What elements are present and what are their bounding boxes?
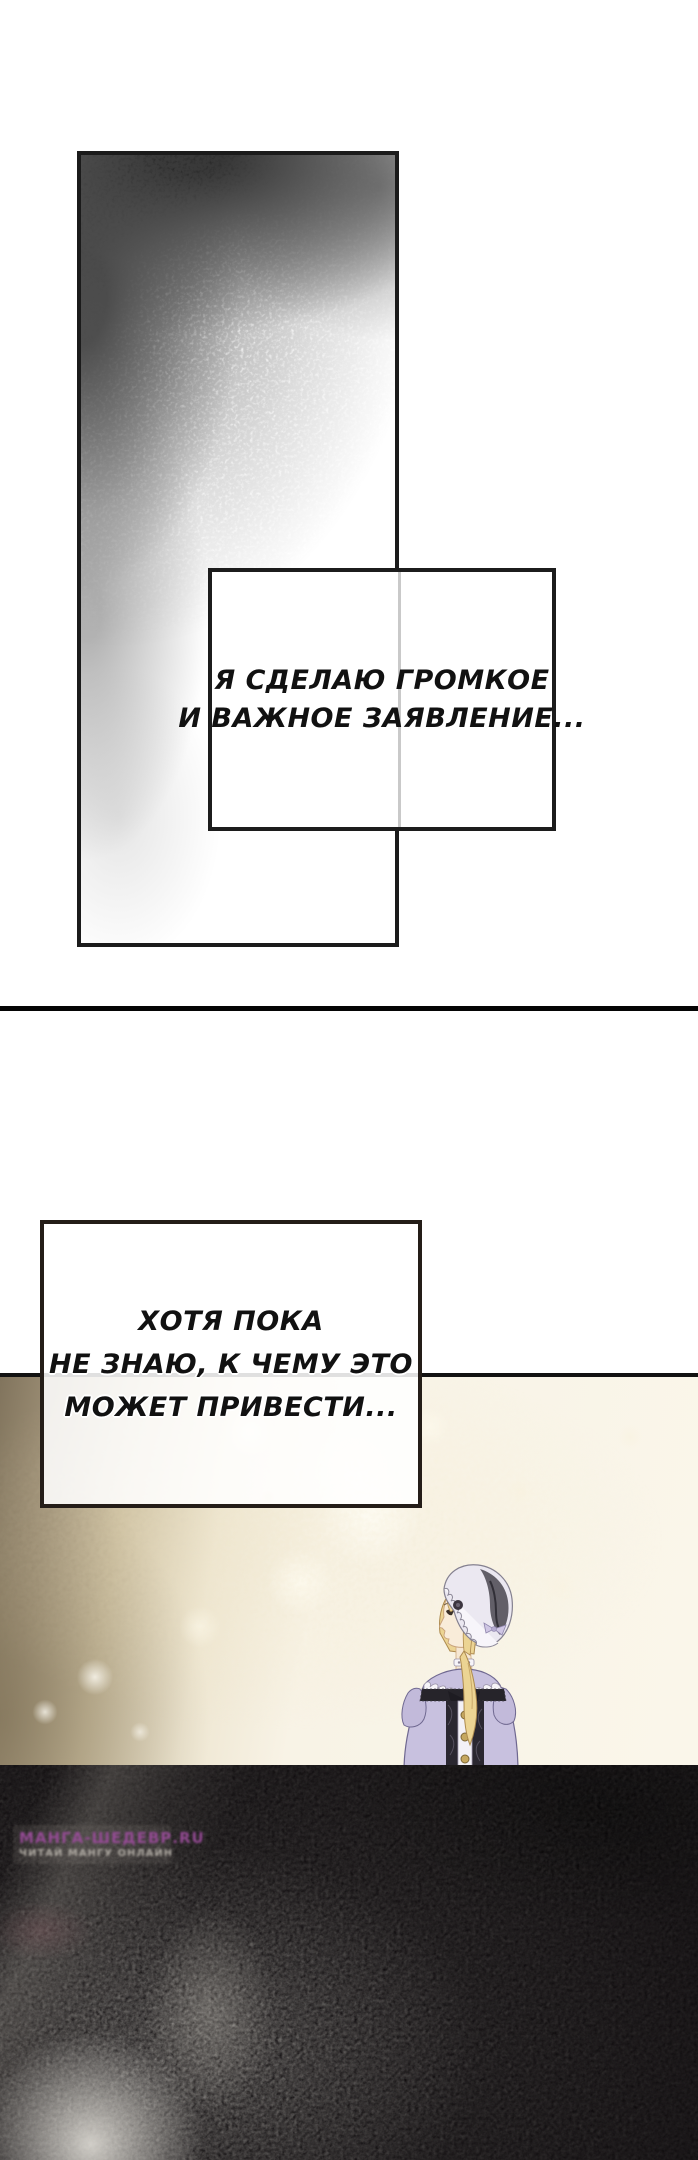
panel-dark: МАНГА-ШЕДЕВР.RU ЧИТАЙ МАНГУ ОНЛАЙН — [0, 1765, 698, 2160]
site-watermark: МАНГА-ШЕДЕВР.RU ЧИТАЙ МАНГУ ОНЛАЙН — [13, 1825, 171, 1864]
character-dress — [402, 1669, 518, 1765]
speech-line: Я СДЕЛАЮ ГРОМКОЕ — [214, 662, 549, 700]
manhwa-page: Я СДЕЛАЮ ГРОМКОЕ И ВАЖНОЕ ЗАЯВЛЕНИЕ... — [0, 0, 698, 2160]
speech-line: ХОТЯ ПОКА — [138, 1300, 323, 1343]
speech-box-2: ХОТЯ ПОКА НЕ ЗНАЮ, К ЧЕМУ ЭТО МОЖЕТ ПРИВ… — [40, 1220, 422, 1508]
watermark-line-2: ЧИТАЙ МАНГУ ОНЛАЙН — [19, 1847, 165, 1860]
character-illustration — [394, 1559, 526, 1765]
section-divider-line — [0, 1006, 698, 1011]
watermark-line-1: МАНГА-ШЕДЕВР.RU — [19, 1829, 165, 1847]
speech-line: И ВАЖНОЕ ЗАЯВЛЕНИЕ... — [178, 700, 585, 738]
speech-line: НЕ ЗНАЮ, К ЧЕМУ ЭТО — [49, 1343, 413, 1386]
speech-box-1: Я СДЕЛАЮ ГРОМКОЕ И ВАЖНОЕ ЗАЯВЛЕНИЕ... — [208, 568, 556, 831]
speech-line: МОЖЕТ ПРИВЕСТИ... — [64, 1386, 397, 1429]
